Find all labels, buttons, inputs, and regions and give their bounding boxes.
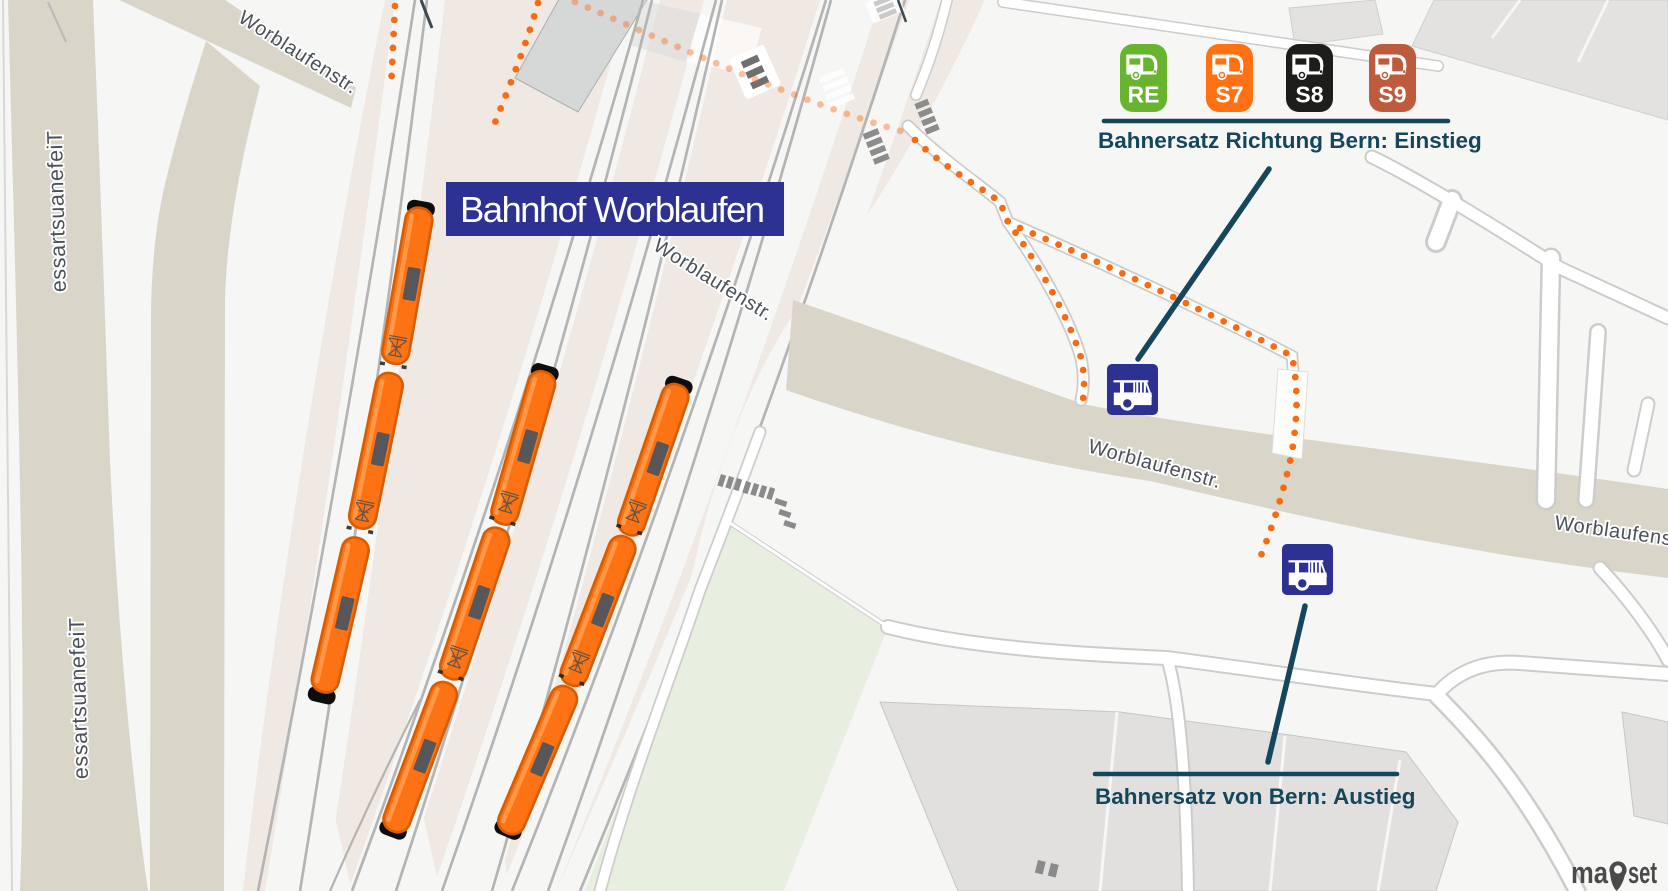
svg-text:RE: RE: [1128, 82, 1160, 108]
svg-text:S9: S9: [1378, 82, 1406, 108]
svg-text:essartsuanefeiT: essartsuanefeiT: [65, 617, 93, 780]
svg-text:Bahnersatz Richtung Bern: Eins: Bahnersatz Richtung Bern: Einstieg: [1098, 128, 1482, 153]
svg-text:essartsuanefeiT: essartsuanefeiT: [43, 130, 71, 293]
svg-text:S7: S7: [1215, 82, 1243, 108]
svg-text:set: set: [1628, 855, 1657, 890]
svg-text:S8: S8: [1295, 82, 1323, 108]
svg-text:ma: ma: [1571, 855, 1609, 890]
svg-text:Bahnersatz von Bern: Austieg: Bahnersatz von Bern: Austieg: [1095, 784, 1415, 809]
svg-text:Bahnhof Worblaufen: Bahnhof Worblaufen: [460, 189, 765, 230]
